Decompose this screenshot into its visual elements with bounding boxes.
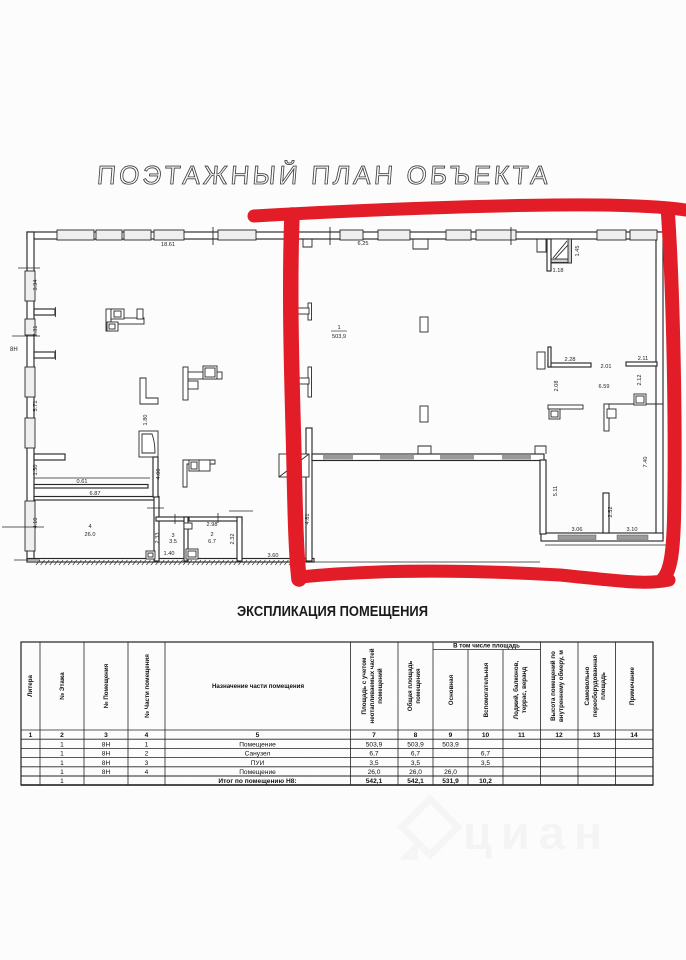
- svg-text:№ Помещения: № Помещения: [103, 663, 110, 708]
- svg-text:помещения: помещения: [415, 668, 422, 704]
- svg-text:3.60: 3.60: [268, 553, 279, 559]
- svg-text:3.06: 3.06: [572, 527, 583, 533]
- svg-text:Назначение части помещения: Назначение части помещения: [212, 683, 305, 690]
- svg-text:2.01: 2.01: [601, 364, 612, 370]
- svg-text:26,0: 26,0: [409, 769, 422, 776]
- svg-text:2.52: 2.52: [608, 507, 614, 518]
- svg-text:1: 1: [145, 741, 149, 748]
- svg-text:7.40: 7.40: [643, 457, 649, 468]
- svg-text:8: 8: [414, 732, 418, 739]
- svg-text:1: 1: [60, 751, 64, 758]
- svg-text:циан: циан: [463, 806, 611, 859]
- svg-text:5.71: 5.71: [33, 401, 39, 412]
- svg-text:3,5: 3,5: [369, 760, 378, 767]
- svg-text:6.7: 6.7: [208, 539, 216, 545]
- svg-text:7: 7: [372, 732, 376, 739]
- svg-text:ПОЭТАЖНЫЙ ПЛАН ОБЪЕКТА: ПОЭТАЖНЫЙ ПЛАН ОБЪЕКТА: [96, 160, 552, 190]
- svg-text:10,2: 10,2: [479, 778, 492, 785]
- svg-text:внутреннему обмеру, м: внутреннему обмеру, м: [558, 650, 565, 722]
- svg-text:2.32: 2.32: [230, 534, 236, 545]
- svg-text:1: 1: [29, 732, 33, 739]
- svg-text:1.45: 1.45: [575, 246, 581, 257]
- svg-text:5: 5: [256, 732, 260, 739]
- svg-text:1: 1: [60, 760, 64, 767]
- svg-text:3: 3: [104, 732, 108, 739]
- svg-text:12: 12: [555, 732, 563, 739]
- svg-text:542,1: 542,1: [366, 778, 383, 785]
- svg-text:1: 1: [60, 769, 64, 776]
- svg-text:4.10: 4.10: [33, 518, 39, 529]
- svg-text:14: 14: [630, 732, 638, 739]
- svg-text:1.40: 1.40: [164, 551, 175, 557]
- svg-text:6.87: 6.87: [90, 491, 101, 497]
- svg-text:5.11: 5.11: [553, 486, 559, 496]
- svg-text:Помещение: Помещение: [239, 769, 276, 776]
- svg-text:26.0: 26.0: [85, 532, 96, 538]
- svg-text:Вспомогательная: Вспомогательная: [483, 662, 490, 717]
- svg-text:26,0: 26,0: [368, 769, 381, 776]
- svg-text:1.80: 1.80: [143, 415, 149, 426]
- svg-text:6,7: 6,7: [481, 751, 490, 758]
- svg-text:3.94: 3.94: [33, 280, 39, 291]
- svg-text:2.28: 2.28: [565, 357, 576, 363]
- svg-text:6.25: 6.25: [358, 241, 369, 247]
- svg-text:2.08: 2.08: [554, 381, 560, 392]
- svg-text:10: 10: [482, 732, 490, 739]
- svg-text:2.33: 2.33: [155, 533, 161, 544]
- svg-text:№ Этажа: № Этажа: [59, 672, 66, 700]
- svg-text:8Н: 8Н: [10, 347, 18, 353]
- svg-text:Общая площадь: Общая площадь: [407, 661, 414, 712]
- svg-text:Лоджий, балконов,: Лоджий, балконов,: [513, 661, 520, 720]
- svg-text:террас, веранд: террас, веранд: [521, 667, 528, 713]
- svg-text:2: 2: [145, 751, 149, 758]
- svg-text:1: 1: [60, 741, 64, 748]
- svg-text:13: 13: [593, 732, 601, 739]
- svg-text:1: 1: [60, 778, 64, 785]
- svg-text:2: 2: [60, 732, 64, 739]
- svg-text:531,9: 531,9: [442, 778, 459, 785]
- svg-text:3.5: 3.5: [169, 539, 177, 545]
- svg-text:1.18: 1.18: [553, 268, 564, 274]
- svg-text:4.00: 4.00: [156, 469, 162, 480]
- svg-text:503,9: 503,9: [407, 741, 424, 748]
- svg-text:18.61: 18.61: [161, 242, 175, 248]
- svg-text:неотапливаемых частей: неотапливаемых частей: [369, 648, 376, 723]
- svg-text:2.11: 2.11: [638, 356, 648, 362]
- svg-text:Помещение: Помещение: [239, 741, 276, 748]
- svg-text:1: 1: [337, 325, 340, 331]
- svg-text:4: 4: [88, 524, 91, 530]
- svg-text:1.50: 1.50: [33, 465, 39, 476]
- svg-text:6.59: 6.59: [599, 384, 610, 390]
- svg-text:503,9: 503,9: [442, 741, 459, 748]
- svg-text:Итог по помещению Н8:: Итог по помещению Н8:: [218, 778, 296, 785]
- svg-text:Самовольно: Самовольно: [584, 666, 591, 705]
- svg-text:2: 2: [210, 532, 213, 538]
- svg-text:Высота помещений по: Высота помещений по: [550, 651, 557, 721]
- svg-text:4.81: 4.81: [305, 514, 311, 525]
- svg-text:8Н: 8Н: [102, 751, 111, 758]
- svg-text:площадь: площадь: [600, 672, 607, 700]
- svg-text:11: 11: [518, 732, 525, 739]
- svg-text:№ Части помещения: № Части помещения: [144, 654, 151, 718]
- svg-text:9: 9: [449, 732, 453, 739]
- svg-text:Литера: Литера: [27, 675, 34, 697]
- svg-text:0.61: 0.61: [77, 479, 88, 485]
- svg-text:542,1: 542,1: [407, 778, 424, 785]
- svg-text:ЭКСПЛИКАЦИЯ ПОМЕЩЕНИЯ: ЭКСПЛИКАЦИЯ ПОМЕЩЕНИЯ: [237, 604, 428, 620]
- svg-text:6,7: 6,7: [411, 751, 420, 758]
- svg-text:Примечание: Примечание: [629, 666, 636, 704]
- svg-text:Основная: Основная: [448, 674, 455, 705]
- svg-text:8Н: 8Н: [102, 741, 111, 748]
- svg-text:Санузел: Санузел: [245, 751, 271, 758]
- svg-text:Площадь с учетом: Площадь с учетом: [361, 657, 368, 714]
- svg-text:В том числе площадь: В том числе площадь: [453, 643, 520, 650]
- svg-text:2.12: 2.12: [637, 375, 643, 386]
- svg-text:8Н: 8Н: [102, 769, 111, 776]
- svg-text:ПУИ: ПУИ: [251, 760, 265, 767]
- svg-text:6,7: 6,7: [369, 751, 378, 758]
- svg-text:3,5: 3,5: [481, 760, 490, 767]
- svg-text:503,9: 503,9: [332, 334, 346, 340]
- svg-text:переоборудованная: переоборудованная: [592, 655, 599, 718]
- svg-text:3: 3: [145, 760, 149, 767]
- svg-text:2.31: 2.31: [33, 326, 39, 337]
- svg-text:3,5: 3,5: [411, 760, 420, 767]
- svg-text:помещений: помещений: [377, 668, 384, 704]
- svg-text:2.98: 2.98: [207, 522, 218, 528]
- svg-text:26,0: 26,0: [444, 769, 457, 776]
- svg-text:8Н: 8Н: [102, 760, 111, 767]
- svg-text:503,9: 503,9: [366, 741, 383, 748]
- svg-text:4: 4: [145, 732, 149, 739]
- svg-text:4: 4: [145, 769, 149, 776]
- svg-text:3.10: 3.10: [627, 527, 638, 533]
